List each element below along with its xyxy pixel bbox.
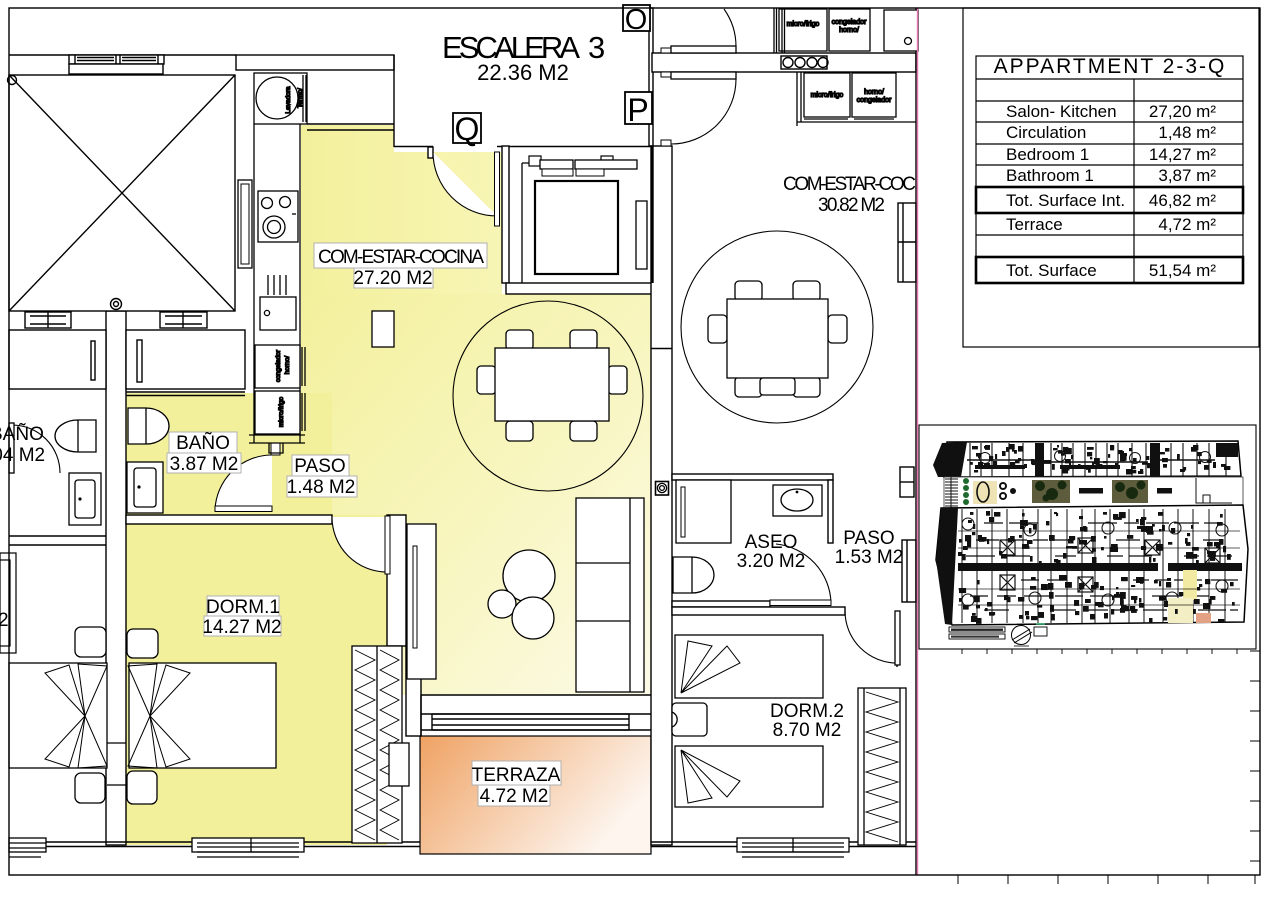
svg-text:8.70 M2: 8.70 M2 [773, 720, 842, 741]
svg-text:TERRAZA: TERRAZA [472, 765, 561, 786]
svg-text:BAÑO: BAÑO [0, 423, 44, 445]
svg-text:3,87 m²: 3,87 m² [1158, 166, 1216, 185]
svg-text:.04 M2: .04 M2 [0, 445, 45, 466]
svg-text:Lavadora: Lavadora [285, 86, 292, 113]
svg-text:micro/frigo: micro/frigo [278, 396, 285, 427]
svg-text:46,82 m²: 46,82 m² [1149, 191, 1216, 210]
svg-text:ASEO: ASEO [745, 532, 798, 553]
svg-text:27,20 m²: 27,20 m² [1149, 102, 1216, 121]
svg-text:Termo/: Termo/ [297, 88, 304, 108]
svg-text:horno/: horno/ [839, 27, 859, 34]
svg-text:PASO: PASO [294, 456, 345, 477]
svg-text:micro/frigo: micro/frigo [811, 92, 844, 99]
svg-text:Circulation: Circulation [1006, 123, 1086, 142]
svg-text:3.87 M2: 3.87 M2 [170, 454, 239, 475]
svg-text:4.72 M2: 4.72 M2 [480, 786, 549, 807]
svg-text:Tot. Surface Int.: Tot. Surface Int. [1006, 191, 1125, 210]
svg-text:22.36 M2: 22.36 M2 [477, 60, 569, 85]
svg-text:congelador: congelador [275, 349, 282, 382]
svg-text:APPARTMENT 2-3-Q: APPARTMENT 2-3-Q [994, 55, 1227, 78]
svg-text:DORM.1: DORM.1 [206, 597, 280, 618]
svg-text:congelador: congelador [857, 97, 892, 104]
svg-text:3.20 M2: 3.20 M2 [737, 551, 806, 572]
svg-text:micro/frigo: micro/frigo [787, 21, 820, 28]
svg-text:horno/: horno/ [864, 89, 884, 96]
svg-text:COM-ESTAR-COCINA: COM-ESTAR-COCINA [318, 247, 484, 268]
svg-text:BAÑO: BAÑO [176, 432, 230, 454]
svg-text:COM-ESTAR-COC: COM-ESTAR-COC [783, 174, 916, 195]
svg-text:Q: Q [455, 111, 480, 147]
svg-text:2: 2 [0, 610, 9, 631]
svg-text:DORM.2: DORM.2 [770, 701, 844, 722]
svg-text:horno/: horno/ [284, 356, 291, 375]
svg-text:14.27 M2: 14.27 M2 [202, 617, 281, 638]
svg-text:PASO: PASO [843, 528, 894, 549]
svg-text:P: P [627, 92, 648, 128]
svg-text:Salon- Kitchen: Salon- Kitchen [1006, 102, 1117, 121]
svg-text:1.53 M2: 1.53 M2 [835, 547, 904, 568]
svg-text:1.48 M2: 1.48 M2 [287, 477, 356, 498]
svg-text:1,48 m²: 1,48 m² [1158, 123, 1216, 142]
svg-text:30.82 M2: 30.82 M2 [818, 195, 885, 216]
svg-text:51,54 m²: 51,54 m² [1149, 261, 1216, 280]
svg-text:Bedroom 1: Bedroom 1 [1006, 145, 1089, 164]
svg-text:27.20 M2: 27.20 M2 [353, 268, 432, 289]
svg-text:14,27 m²: 14,27 m² [1149, 145, 1216, 164]
svg-text:Tot. Surface: Tot. Surface [1006, 261, 1097, 280]
svg-text:Bathroom 1: Bathroom 1 [1006, 166, 1094, 185]
svg-text:congelador: congelador [832, 19, 867, 26]
svg-text:Terrace: Terrace [1006, 215, 1063, 234]
svg-text:3: 3 [588, 30, 605, 65]
svg-text:4,72 m²: 4,72 m² [1158, 215, 1216, 234]
svg-text:O: O [625, 4, 648, 36]
